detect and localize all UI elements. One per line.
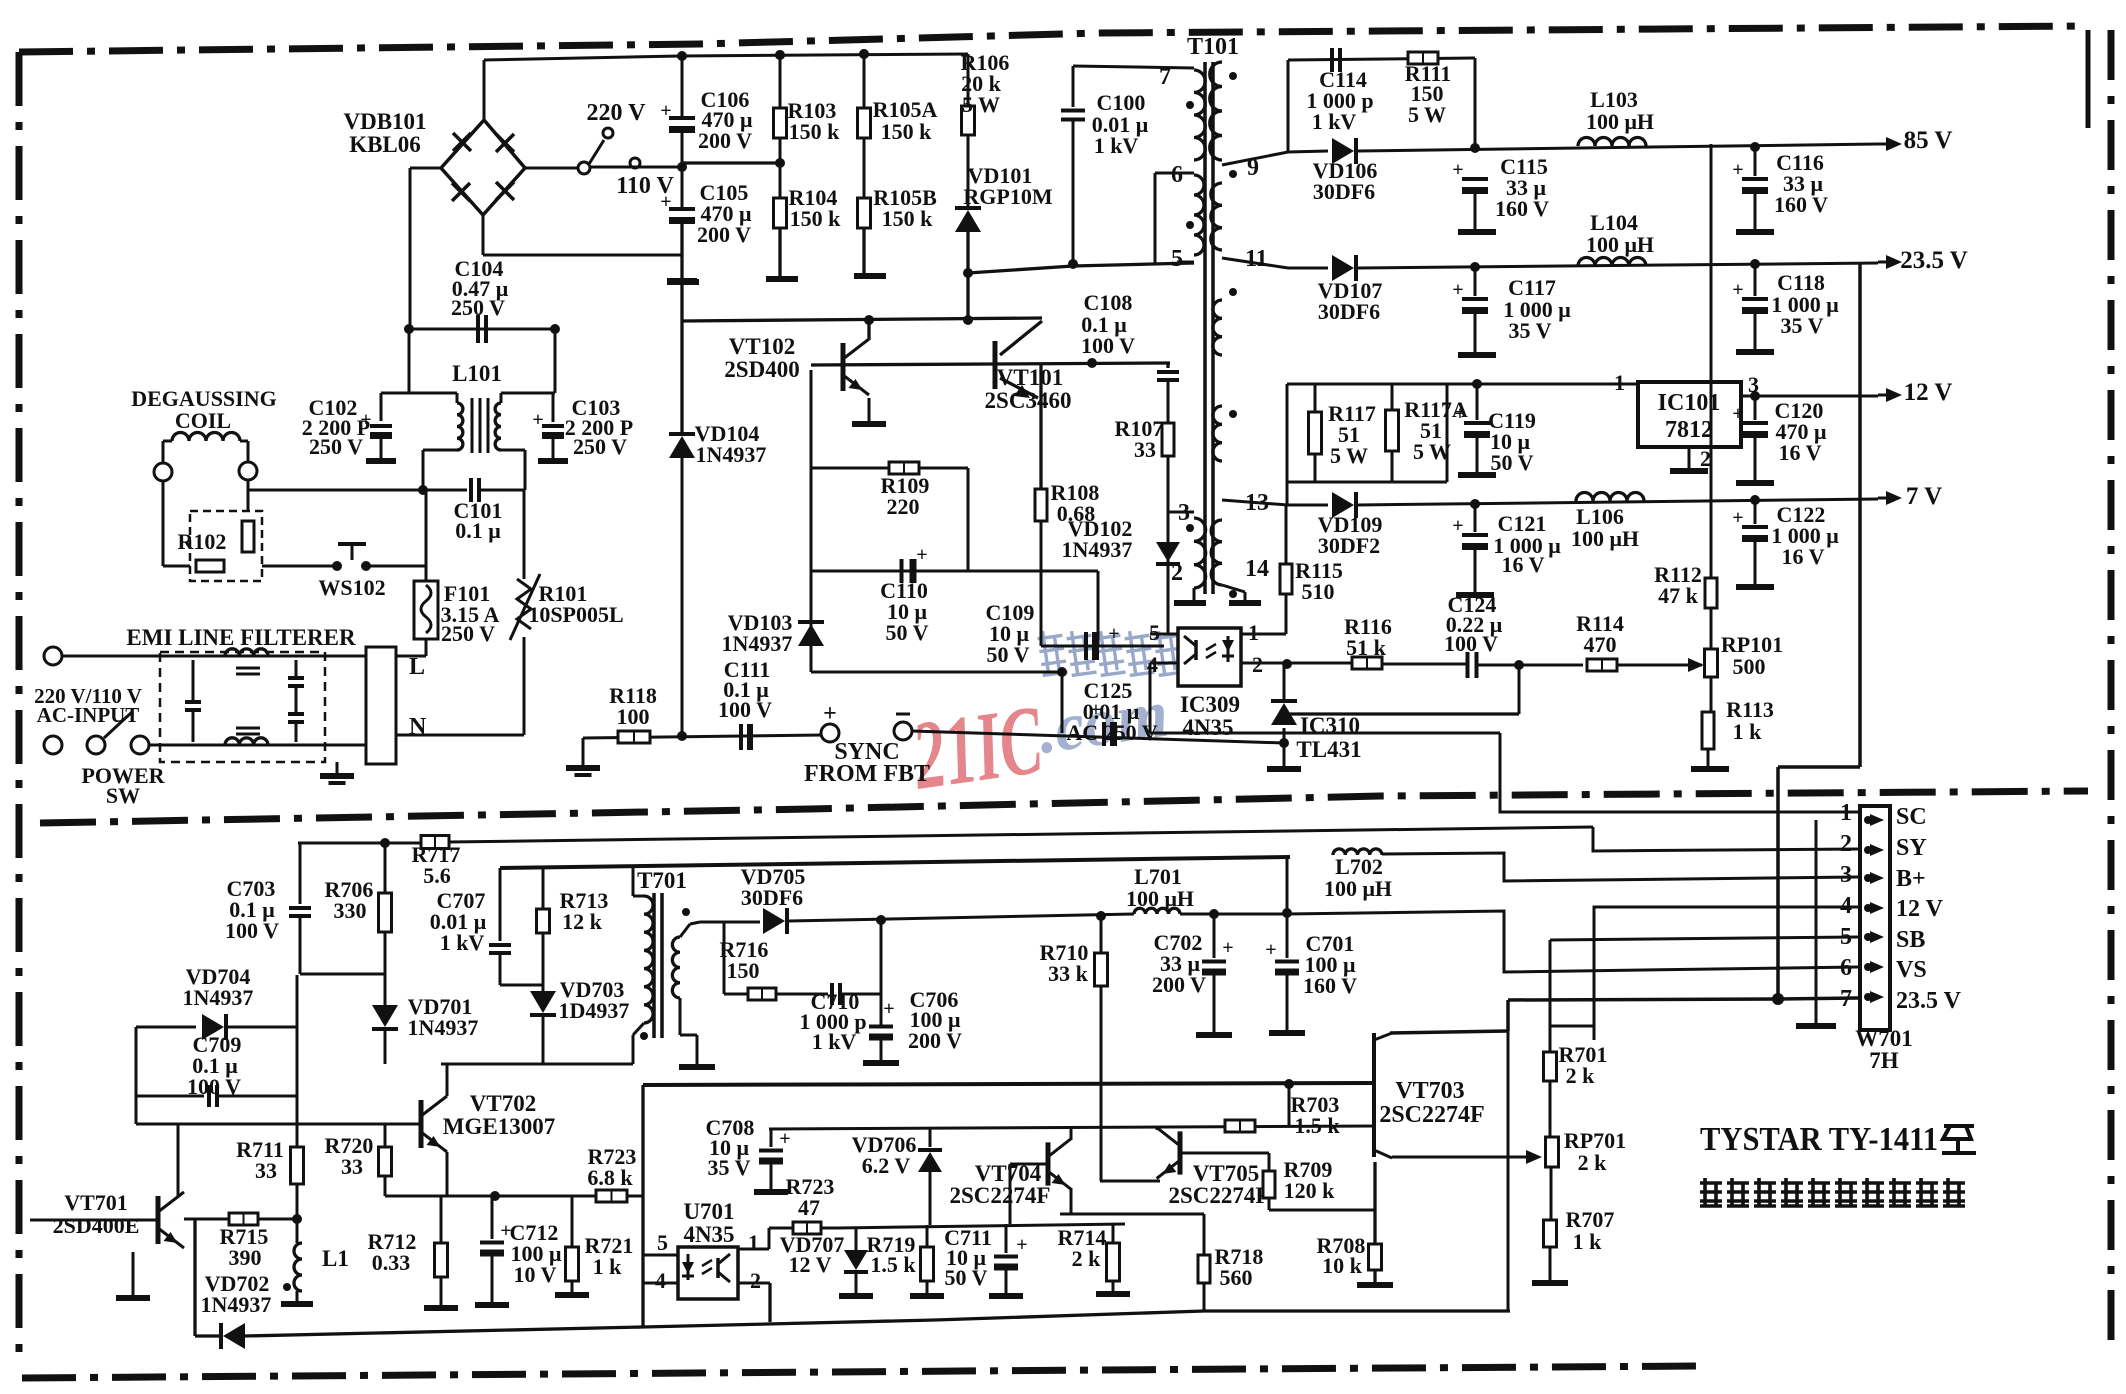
svg-text:+: +: [916, 544, 927, 566]
svg-text:+: +: [1016, 1234, 1027, 1256]
svg-text:3: 3: [1840, 862, 1852, 888]
svg-text:1 kV: 1 kV: [1094, 133, 1139, 158]
svg-text:+: +: [883, 998, 894, 1020]
svg-text:WS102: WS102: [318, 575, 385, 600]
svg-text:7: 7: [1840, 986, 1852, 1012]
svg-text:150 k: 150 k: [790, 206, 842, 231]
svg-text:SB: SB: [1896, 927, 1925, 953]
svg-text:12 V: 12 V: [1896, 896, 1944, 922]
svg-text:200 V: 200 V: [1152, 972, 1206, 997]
svg-text:2SD400: 2SD400: [724, 357, 799, 382]
svg-text:+: +: [1732, 403, 1743, 425]
svg-text:SC: SC: [1896, 804, 1927, 830]
svg-text:AC 250 V: AC 250 V: [1066, 720, 1157, 745]
svg-text:6.8 k: 6.8 k: [587, 1165, 633, 1190]
svg-text:IC309: IC309: [1180, 692, 1240, 717]
svg-text:50 V: 50 V: [945, 1265, 988, 1290]
svg-text:1.5 k: 1.5 k: [1294, 1113, 1340, 1138]
svg-text:SY: SY: [1896, 835, 1927, 861]
svg-text:1: 1: [1840, 800, 1852, 826]
svg-text:16 V: 16 V: [1782, 544, 1825, 569]
svg-text:100 μH: 100 μH: [1586, 232, 1654, 257]
svg-text:100 V: 100 V: [1444, 631, 1498, 656]
svg-text:100 μH: 100 μH: [1586, 109, 1654, 134]
svg-text:23.5 V: 23.5 V: [1896, 988, 1962, 1014]
svg-text:+: +: [1108, 623, 1119, 645]
svg-text:2 k: 2 k: [1578, 1150, 1608, 1175]
svg-text:150 k: 150 k: [881, 119, 933, 144]
svg-text:VDB101: VDB101: [343, 109, 426, 134]
svg-text:1 k: 1 k: [1573, 1229, 1603, 1254]
svg-text:U701: U701: [683, 1199, 734, 1224]
svg-text:12 k: 12 k: [562, 909, 603, 934]
svg-text:250 V: 250 V: [451, 295, 505, 320]
svg-text:50 V: 50 V: [987, 642, 1030, 667]
svg-text:23.5 V: 23.5 V: [1900, 247, 1968, 274]
svg-text:1N4937: 1N4937: [1062, 537, 1133, 562]
svg-text:30DF6: 30DF6: [741, 885, 803, 910]
svg-text:2: 2: [1171, 560, 1183, 586]
svg-text:12 V: 12 V: [789, 1252, 832, 1277]
svg-text:85 V: 85 V: [1904, 127, 1953, 154]
svg-text:47: 47: [798, 1195, 820, 1220]
svg-text:+: +: [1732, 159, 1743, 181]
svg-text:47 k: 47 k: [1658, 583, 1699, 608]
svg-text:1 kV: 1 kV: [812, 1029, 857, 1054]
svg-text:2 k: 2 k: [1566, 1063, 1596, 1088]
svg-text:35 V: 35 V: [1781, 313, 1824, 338]
svg-text:2SC2274F: 2SC2274F: [1379, 1102, 1484, 1128]
svg-text:4N35: 4N35: [683, 1222, 734, 1247]
svg-text:1 kV: 1 kV: [440, 930, 485, 955]
svg-text:7 V: 7 V: [1906, 483, 1942, 510]
svg-text:2 k: 2 k: [1072, 1246, 1102, 1271]
svg-text:1N4937: 1N4937: [722, 631, 793, 656]
svg-text:200 V: 200 V: [697, 222, 751, 247]
svg-text:500: 500: [1733, 654, 1766, 679]
svg-text:VT101: VT101: [997, 365, 1063, 390]
svg-text:100 V: 100 V: [1081, 333, 1135, 358]
svg-text:390: 390: [229, 1245, 262, 1270]
svg-text:2SC2274F: 2SC2274F: [1169, 1183, 1270, 1208]
svg-text:RGP10M: RGP10M: [963, 184, 1052, 209]
svg-text:T101: T101: [1187, 34, 1239, 60]
svg-text:VT703: VT703: [1395, 1078, 1464, 1104]
svg-text:2SD400E: 2SD400E: [53, 1213, 140, 1238]
svg-text:1N4937: 1N4937: [201, 1292, 272, 1317]
svg-text:+: +: [1732, 279, 1743, 301]
svg-text:1D4937: 1D4937: [559, 998, 630, 1023]
svg-text:10SP005L: 10SP005L: [528, 602, 623, 627]
svg-text:7812: 7812: [1665, 417, 1713, 443]
svg-text:250 V: 250 V: [573, 434, 627, 459]
svg-text:2SC2274F: 2SC2274F: [950, 1183, 1051, 1208]
svg-text:L101: L101: [452, 361, 502, 386]
svg-text:33: 33: [341, 1154, 363, 1179]
svg-text:100 V: 100 V: [187, 1074, 241, 1099]
svg-text:33: 33: [255, 1158, 277, 1183]
svg-text:30DF6: 30DF6: [1318, 299, 1380, 324]
svg-text:50 V: 50 V: [886, 620, 929, 645]
svg-text:14: 14: [1245, 556, 1269, 582]
svg-text:5 W: 5 W: [1330, 443, 1368, 468]
svg-text:B+: B+: [1896, 866, 1926, 892]
svg-text:VT702: VT702: [470, 1091, 536, 1116]
svg-text:EMI LINE FILTERER: EMI LINE FILTERER: [126, 625, 356, 650]
svg-text:1.5 k: 1.5 k: [870, 1252, 916, 1277]
svg-text:5 W: 5 W: [962, 92, 1000, 117]
svg-text:5 W: 5 W: [1408, 102, 1446, 127]
svg-text:16 V: 16 V: [1502, 552, 1545, 577]
svg-text:COIL: COIL: [175, 408, 231, 433]
svg-text:T701: T701: [637, 868, 687, 893]
svg-text:160 V: 160 V: [1303, 973, 1357, 998]
svg-text:1: 1: [1614, 370, 1625, 395]
svg-text:50 V: 50 V: [1491, 450, 1534, 475]
svg-text:33: 33: [1134, 437, 1156, 462]
svg-text:1 kV: 1 kV: [1312, 109, 1357, 134]
svg-text:200 V: 200 V: [908, 1028, 962, 1053]
svg-text:MGE13007: MGE13007: [443, 1114, 555, 1139]
svg-text:L1: L1: [322, 1246, 349, 1271]
svg-text:+: +: [532, 409, 543, 431]
svg-text:FROM FBT: FROM FBT: [804, 761, 930, 787]
svg-text:100 V: 100 V: [718, 697, 772, 722]
svg-text:+: +: [1452, 159, 1463, 181]
svg-text:4N35: 4N35: [1182, 715, 1233, 740]
svg-text:SW: SW: [106, 783, 140, 808]
svg-text:4: 4: [655, 1268, 666, 1293]
svg-text:1N4937: 1N4937: [696, 442, 767, 467]
svg-text:1N4937: 1N4937: [183, 985, 254, 1010]
svg-text:2: 2: [1700, 446, 1711, 471]
svg-text:VT701: VT701: [64, 1190, 128, 1215]
svg-text:250 V: 250 V: [441, 621, 495, 646]
svg-text:5.6: 5.6: [423, 863, 451, 888]
svg-text:470: 470: [1584, 632, 1617, 657]
svg-text:TYSTAR TY-1411: TYSTAR TY-1411: [1700, 1121, 1938, 1158]
svg-text:2: 2: [1840, 831, 1852, 857]
svg-text:51 k: 51 k: [1346, 635, 1387, 660]
svg-text:0.33: 0.33: [372, 1250, 411, 1275]
svg-text:150 k: 150 k: [789, 119, 841, 144]
svg-text:200 V: 200 V: [698, 128, 752, 153]
svg-text:5: 5: [1171, 246, 1183, 272]
svg-text:0.1 μ: 0.1 μ: [455, 518, 501, 543]
svg-text:11: 11: [1245, 246, 1268, 272]
svg-text:35 V: 35 V: [1509, 318, 1552, 343]
svg-text:100 μH: 100 μH: [1126, 886, 1194, 911]
svg-text:250 V: 250 V: [309, 434, 363, 459]
svg-text:+: +: [779, 1128, 790, 1150]
svg-text:6: 6: [1840, 955, 1852, 981]
svg-text:560: 560: [1220, 1265, 1253, 1290]
svg-text:5: 5: [657, 1230, 668, 1255]
svg-text:2: 2: [750, 1268, 761, 1293]
svg-text:VT102: VT102: [729, 334, 795, 359]
svg-text:150 k: 150 k: [882, 206, 934, 231]
svg-text:100 V: 100 V: [225, 918, 279, 943]
svg-text:+: +: [1222, 937, 1233, 959]
svg-text:1 k: 1 k: [593, 1254, 623, 1279]
svg-text:KBL06: KBL06: [349, 132, 421, 157]
svg-text:+: +: [660, 100, 671, 122]
svg-text:220 V: 220 V: [587, 100, 647, 126]
svg-text:7H: 7H: [1869, 1048, 1899, 1073]
svg-text:10 k: 10 k: [1322, 1253, 1363, 1278]
svg-text:33 k: 33 k: [1048, 961, 1089, 986]
svg-text:+: +: [660, 191, 671, 213]
svg-text:330: 330: [334, 898, 367, 923]
svg-text:+: +: [1454, 403, 1465, 425]
svg-text:35 V: 35 V: [708, 1155, 751, 1180]
svg-text:16 V: 16 V: [1779, 440, 1822, 465]
svg-text:100 μH: 100 μH: [1324, 876, 1392, 901]
svg-text:6: 6: [1171, 162, 1183, 188]
svg-text:100 μH: 100 μH: [1571, 526, 1639, 551]
svg-text:5 W: 5 W: [1413, 439, 1451, 464]
svg-text:L: L: [409, 654, 425, 680]
svg-text:160 V: 160 V: [1774, 192, 1828, 217]
svg-text:150: 150: [727, 958, 760, 983]
svg-text:100: 100: [617, 704, 650, 729]
svg-text:10 V: 10 V: [514, 1262, 557, 1287]
svg-text:1 k: 1 k: [1733, 719, 1763, 744]
svg-text:R102: R102: [178, 529, 227, 554]
svg-text:30DF6: 30DF6: [1313, 179, 1375, 204]
svg-text:120 k: 120 k: [1284, 1178, 1336, 1203]
svg-text:AC-INPUT: AC-INPUT: [37, 703, 140, 727]
svg-text:1N4937: 1N4937: [408, 1015, 479, 1040]
svg-text:+: +: [1452, 279, 1463, 301]
svg-text:160 V: 160 V: [1495, 196, 1549, 221]
svg-text:6.2 V: 6.2 V: [862, 1153, 911, 1178]
svg-text:+: +: [1452, 515, 1463, 537]
svg-text:220: 220: [887, 494, 920, 519]
svg-text:5: 5: [1840, 924, 1852, 950]
svg-text:21IC: 21IC: [905, 686, 1049, 811]
svg-text:4: 4: [1840, 893, 1852, 919]
svg-text:1: 1: [748, 1230, 759, 1255]
svg-text:VS: VS: [1896, 957, 1927, 983]
svg-text:510: 510: [1302, 579, 1335, 604]
svg-text:TL431: TL431: [1296, 737, 1361, 762]
svg-text:+: +: [1732, 507, 1743, 529]
svg-text:30DF2: 30DF2: [1318, 533, 1380, 558]
svg-text:+: +: [823, 701, 837, 727]
svg-text:12 V: 12 V: [1904, 379, 1953, 406]
svg-text:+: +: [1265, 939, 1276, 961]
